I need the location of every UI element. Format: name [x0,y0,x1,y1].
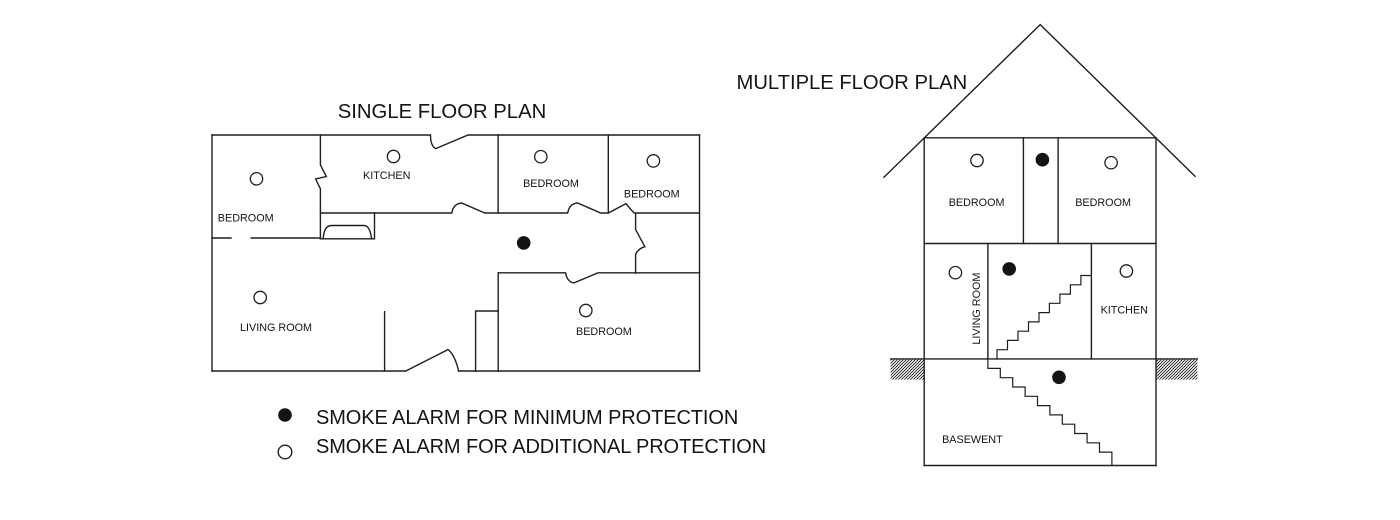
svg-text:BEDROOM: BEDROOM [523,178,579,190]
svg-text:BEDROOM: BEDROOM [1075,197,1131,209]
svg-text:SMOKE ALARM FOR ADDITIONAL PRO: SMOKE ALARM FOR ADDITIONAL PROTECTION [316,436,766,458]
svg-text:BEDROOM: BEDROOM [949,197,1005,209]
svg-text:BEDROOM: BEDROOM [624,188,680,200]
svg-text:KITCHEN: KITCHEN [1101,304,1148,316]
svg-text:SMOKE ALARM FOR MINIMUM PROTEC: SMOKE ALARM FOR MINIMUM PROTECTION [316,407,738,429]
svg-text:BEDROOM: BEDROOM [218,213,274,225]
svg-text:MULTIPLE FLOOR PLAN: MULTIPLE FLOOR PLAN [737,72,968,94]
svg-text:LIVING ROOM: LIVING ROOM [971,273,983,345]
svg-text:BEDROOM: BEDROOM [576,326,632,338]
svg-text:SINGLE FLOOR PLAN: SINGLE FLOOR PLAN [338,101,547,123]
svg-text:LIVING ROOM: LIVING ROOM [240,322,312,334]
svg-text:KITCHEN: KITCHEN [363,170,410,182]
svg-text:BASEWENT: BASEWENT [942,434,1003,446]
